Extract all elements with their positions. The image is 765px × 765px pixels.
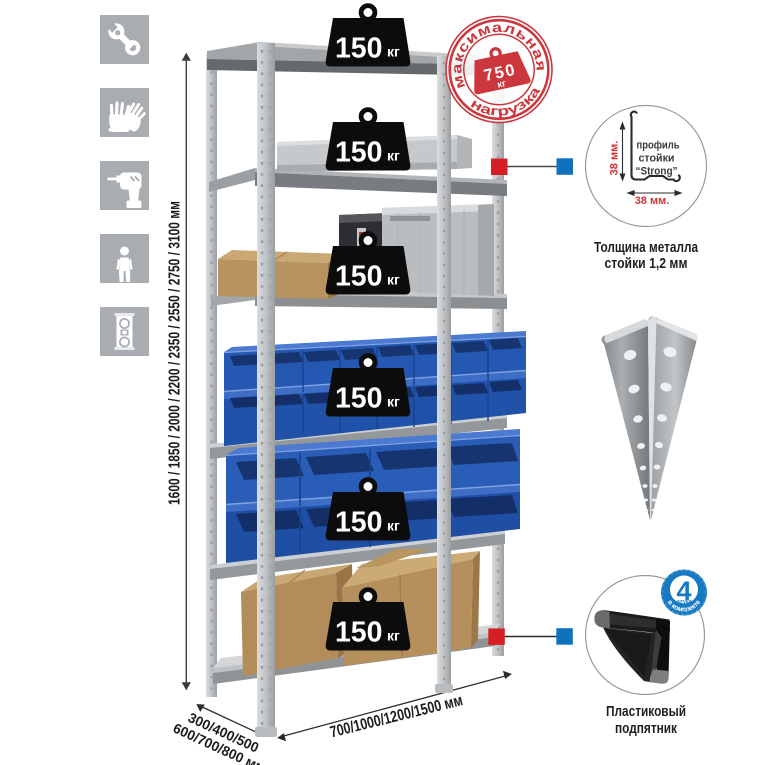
svg-text:штуки: штуки [676,599,691,605]
svg-text:38 мм.: 38 мм. [635,195,670,207]
svg-text:Пластиковый: Пластиковый [606,704,686,720]
svg-text:стойки 1,2 мм: стойки 1,2 мм [605,256,688,272]
svg-text:стойки: стойки [639,153,675,165]
svg-text:Толщина металла: Толщина металла [594,240,699,256]
svg-text:“Strong”: “Strong” [636,166,678,178]
svg-text:1600 / 1850 / 2000 / 2200 / 23: 1600 / 1850 / 2000 / 2200 / 2350 / 2550 … [167,201,184,505]
svg-text:38 мм.: 38 мм. [609,141,621,176]
svg-text:профиль: профиль [637,140,680,152]
svg-text:подпятник: подпятник [615,721,678,737]
